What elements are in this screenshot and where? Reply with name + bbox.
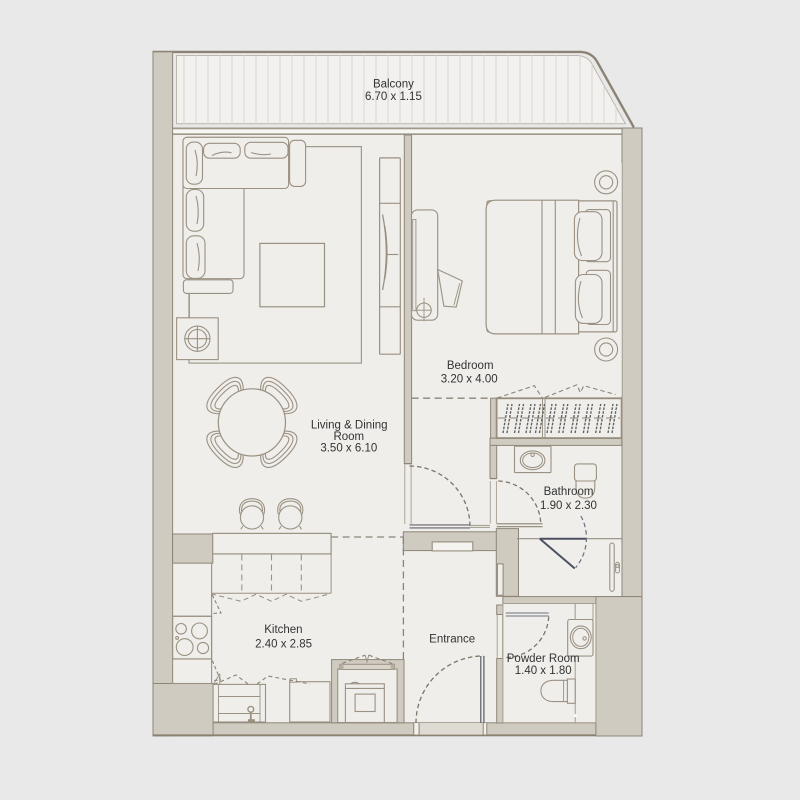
svg-text:Room: Room bbox=[333, 431, 364, 443]
svg-text:Kitchen: Kitchen bbox=[264, 624, 302, 636]
svg-text:Living & Dining: Living & Dining bbox=[311, 420, 388, 432]
svg-text:Entrance: Entrance bbox=[429, 633, 475, 645]
svg-text:1.90 x 2.30: 1.90 x 2.30 bbox=[540, 500, 597, 512]
svg-text:3.50 x 6.10: 3.50 x 6.10 bbox=[320, 443, 377, 455]
svg-text:Bathroom: Bathroom bbox=[544, 486, 594, 498]
svg-text:3.20 x 4.00: 3.20 x 4.00 bbox=[441, 373, 498, 385]
svg-text:2.40 x 2.85: 2.40 x 2.85 bbox=[255, 638, 312, 650]
svg-text:6.70 x 1.15: 6.70 x 1.15 bbox=[365, 91, 422, 103]
svg-text:Powder Room: Powder Room bbox=[507, 653, 580, 665]
svg-text:1.40 x 1.80: 1.40 x 1.80 bbox=[515, 665, 572, 677]
svg-text:Bedroom: Bedroom bbox=[447, 360, 494, 372]
svg-text:Balcony: Balcony bbox=[373, 78, 414, 90]
